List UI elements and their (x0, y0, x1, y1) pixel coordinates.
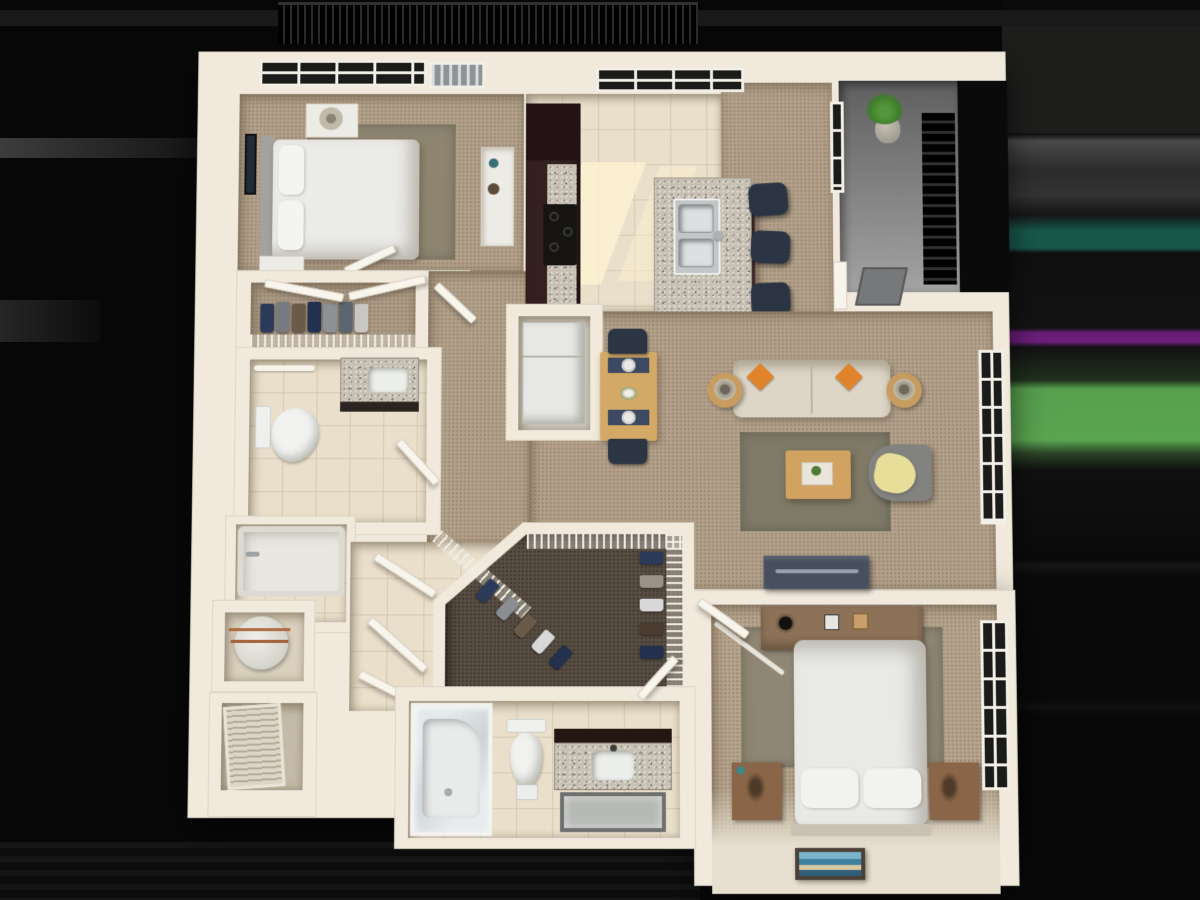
walkin-shelf-top (527, 534, 682, 549)
closet1-clothes-gray2 (323, 304, 337, 333)
closet1-clothes-brown (292, 304, 306, 333)
refrigerator-divider (522, 356, 585, 358)
dresser-frame (852, 612, 869, 630)
bedroom2-lamp-top (319, 107, 343, 130)
plate-1 (622, 359, 636, 373)
copper-pipe-1 (229, 628, 291, 631)
bathroom2-mirror-reflection (560, 792, 666, 832)
dresser-bowl (775, 612, 797, 634)
bedroom1-pillow-2 (863, 768, 921, 808)
dresser-box (824, 614, 839, 630)
bedroom1-window (980, 620, 1010, 790)
bedroom2-vase-teal (489, 159, 499, 169)
bedroom1-bed-bench (791, 824, 932, 836)
tub-faucet (246, 552, 260, 557)
walkin-clothes-10 (640, 646, 664, 659)
dining-chair-top (608, 329, 647, 354)
bedroom1-lamp-right (939, 772, 959, 802)
dining-chair-bottom (608, 439, 647, 464)
sink-faucet (714, 231, 724, 241)
bathroom2-sink (592, 751, 634, 781)
walkin-clothes-7 (640, 575, 664, 588)
apartment-plan (187, 52, 1018, 885)
bedroom1-lamp-left (746, 772, 766, 802)
balcony-door (429, 62, 486, 88)
bathroom1-sink (368, 367, 408, 392)
kitchen-tall-pantry (526, 103, 581, 160)
bathroom2-toilet-base (516, 784, 538, 800)
front-doormat (855, 267, 908, 305)
soundbar (775, 569, 858, 573)
bathroom1-towel-bar (254, 365, 315, 371)
bedroom2-pillow-2 (278, 200, 304, 250)
closet1-clothes-white (355, 304, 369, 333)
walkin-clothes-9 (640, 622, 664, 635)
background-band-left-lower (0, 300, 100, 342)
bedroom2-wall-art (244, 134, 256, 195)
bedroom2-vase-brown (488, 183, 500, 194)
refrigerator (522, 322, 585, 424)
copper-pipe-2 (231, 640, 289, 643)
lamp-right (893, 379, 915, 400)
bar-stool-1 (747, 182, 788, 217)
sofa-cushion-split (810, 363, 812, 413)
floorplan-render (0, 0, 1200, 900)
bar-stool-2 (750, 230, 791, 264)
bathroom2-faucet (610, 745, 617, 752)
walkin-clothes-6 (640, 552, 664, 565)
lamp-left (714, 379, 736, 400)
bathtub (237, 526, 345, 596)
bathroom2-vanity-back (554, 729, 672, 743)
burner-3 (549, 242, 559, 252)
closet1-wire-shelf (250, 334, 415, 347)
coffee-table-plant (811, 466, 821, 476)
nightstand-teal-decor (737, 766, 745, 774)
burner-2 (563, 227, 573, 237)
walkin-clothes-8 (640, 599, 664, 612)
living-window (978, 350, 1006, 524)
plate-2 (622, 411, 636, 425)
porch-open-side (957, 81, 1010, 292)
shower-tray (422, 719, 480, 818)
shower-drain (444, 788, 452, 796)
porch-stair-railing (922, 113, 957, 285)
balcony-railing (278, 2, 698, 44)
closet1-clothes-navy2 (307, 302, 321, 333)
bathroom2-toilet-tank (506, 719, 546, 733)
bedroom1-floor-art (795, 848, 865, 880)
bedroom2-window (259, 60, 427, 86)
bedroom2-pillow-1 (279, 145, 305, 194)
background-streaks-right (1002, 0, 1200, 900)
plant-leaves (865, 92, 904, 124)
bathroom1-toilet-tank (255, 406, 271, 449)
kitchen-window (596, 68, 744, 93)
bedroom1-pillow-1 (800, 768, 858, 808)
porch-sidelight-window (830, 102, 844, 193)
sink-basin-2 (678, 239, 713, 268)
closet1-clothes-gray1 (276, 302, 290, 333)
closet1-clothes-navy (260, 304, 274, 333)
dining-flowers (620, 387, 638, 401)
front-door (833, 262, 847, 310)
bathroom1-vanity-base (340, 402, 419, 412)
closet1-clothes-slate (339, 302, 353, 333)
louvered-door (223, 703, 286, 790)
burner-1 (549, 212, 559, 222)
background-band-left-upper (0, 138, 200, 158)
sink-basin-1 (678, 204, 713, 233)
